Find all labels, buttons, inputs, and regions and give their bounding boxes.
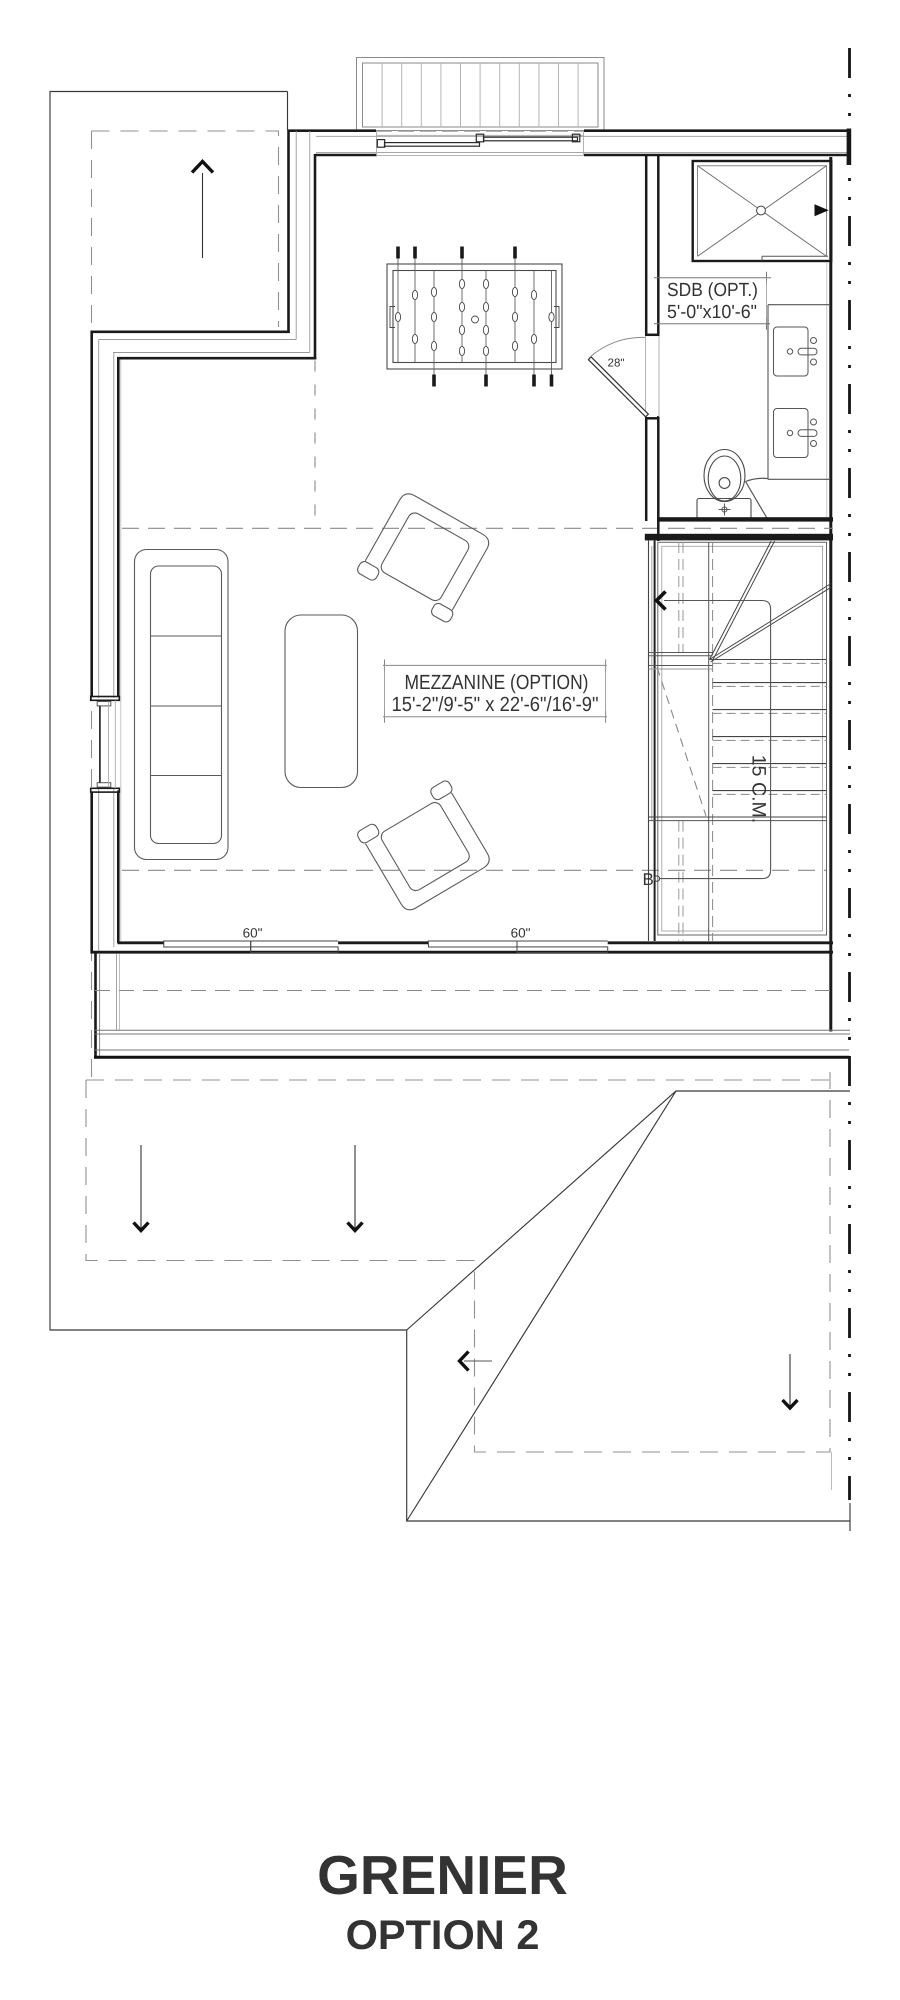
svg-text:5'-0"x10'-6": 5'-0"x10'-6": [667, 302, 757, 323]
svg-text:60": 60": [243, 926, 263, 941]
svg-text:GRENIER: GRENIER: [317, 1844, 568, 1906]
svg-text:15'-2"/9'-5" x 22'-6"/16'-9": 15'-2"/9'-5" x 22'-6"/16'-9": [392, 693, 599, 716]
svg-text:OPTION 2: OPTION 2: [346, 1911, 540, 1958]
svg-text:B: B: [643, 870, 654, 889]
svg-text:28": 28": [608, 358, 625, 370]
svg-text:60": 60": [511, 926, 531, 941]
svg-text:SDB (OPT.): SDB (OPT.): [667, 280, 758, 301]
svg-text:MEZZANINE (OPTION): MEZZANINE (OPTION): [405, 671, 589, 694]
svg-text:15 C.M.: 15 C.M.: [748, 755, 770, 823]
